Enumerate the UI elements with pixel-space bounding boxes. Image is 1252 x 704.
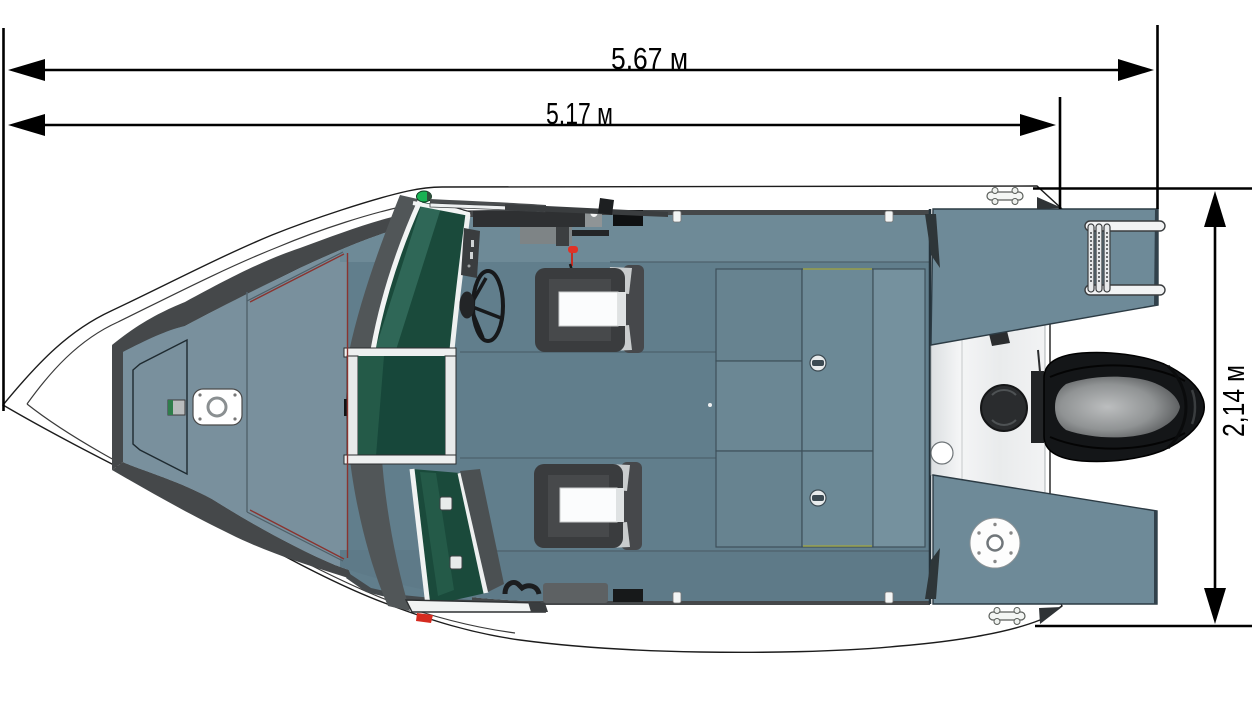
svg-text:2,14 м: 2,14 м: [1216, 365, 1251, 437]
svg-text:5.67 м: 5.67 м: [611, 41, 688, 76]
svg-text:5.17 м: 5.17 м: [546, 96, 613, 131]
